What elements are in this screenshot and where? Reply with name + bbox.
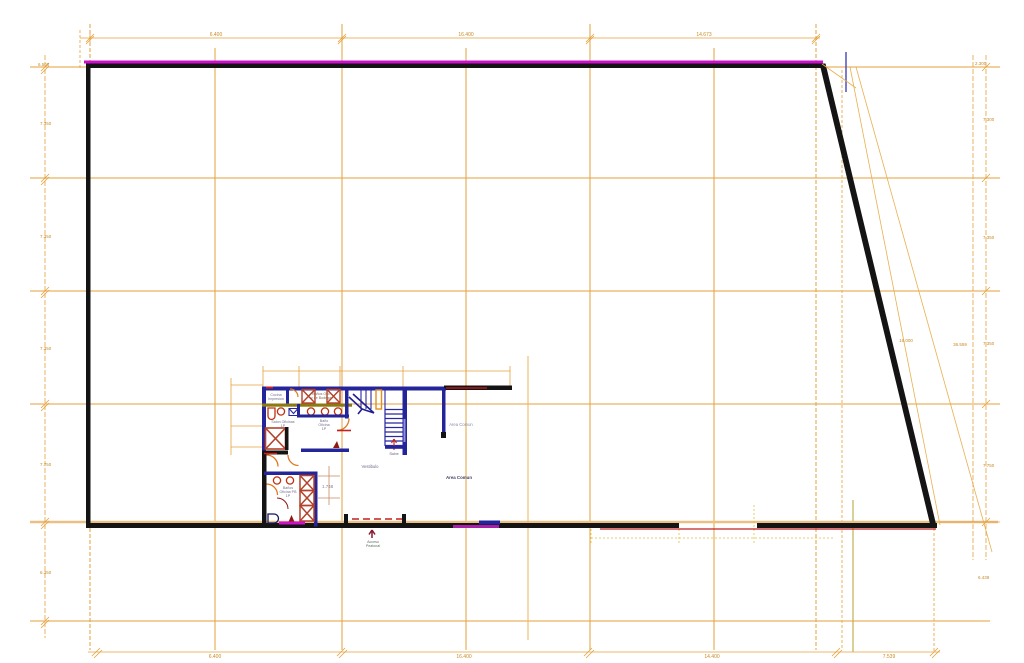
svg-text:7.750: 7.750 (40, 462, 52, 467)
svg-text:2.300: 2.300 (975, 61, 987, 66)
svg-text:Peatonal: Peatonal (366, 544, 380, 548)
svg-text:16.400: 16.400 (458, 32, 474, 38)
svg-text:36.559: 36.559 (953, 342, 967, 347)
svg-text:1P: 1P (281, 424, 286, 428)
svg-text:Impresion: Impresion (268, 397, 284, 401)
svg-text:7.750: 7.750 (983, 463, 995, 468)
svg-text:6.350: 6.350 (40, 570, 52, 575)
svg-text:6.500: 6.500 (38, 62, 50, 67)
svg-text:1.748: 1.748 (322, 484, 334, 489)
svg-text:Vestibulo: Vestibulo (362, 464, 380, 469)
svg-text:7.350: 7.350 (983, 235, 995, 240)
svg-text:16.400: 16.400 (456, 654, 472, 660)
svg-text:14.673: 14.673 (696, 32, 712, 38)
svg-text:6.439: 6.439 (978, 575, 990, 580)
svg-text:7.350: 7.350 (40, 346, 52, 351)
svg-text:Sube: Sube (389, 451, 399, 456)
svg-text:Area Comun: Area Comun (446, 475, 472, 480)
svg-text:1P: 1P (322, 427, 327, 431)
svg-text:7.350: 7.350 (983, 341, 995, 346)
svg-text:6.400: 6.400 (209, 654, 222, 660)
svg-text:14.400: 14.400 (704, 654, 720, 660)
svg-text:y de Bodega: y de Bodega (311, 396, 331, 400)
svg-text:7.300: 7.300 (983, 117, 995, 122)
svg-text:7.350: 7.350 (40, 121, 52, 126)
svg-text:Area Comun: Area Comun (449, 422, 473, 427)
svg-text:1P: 1P (286, 494, 291, 498)
svg-text:16.000: 16.000 (899, 338, 913, 343)
svg-text:6.400: 6.400 (210, 32, 223, 38)
svg-text:7.350: 7.350 (40, 234, 52, 239)
svg-text:7.539: 7.539 (883, 654, 896, 660)
